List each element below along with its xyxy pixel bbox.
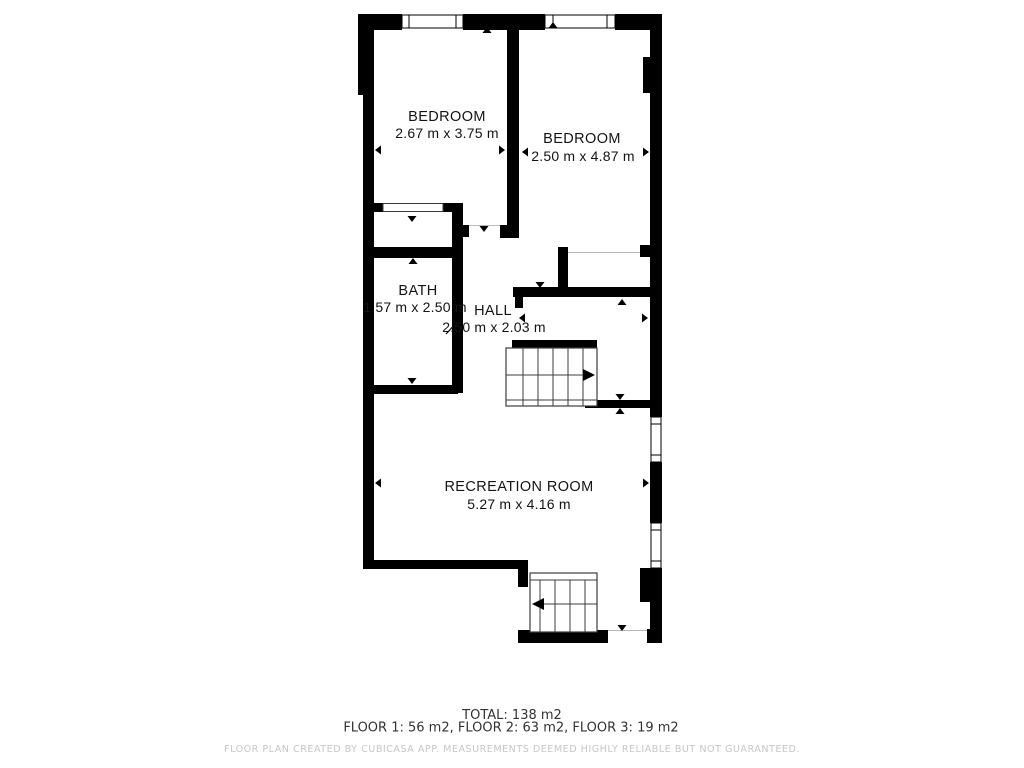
- room-dimensions: 1.57 m x 2.50 m: [363, 299, 466, 315]
- floor-plan-page: BEDROOM 2.67 m x 3.75 m BEDROOM 2.50 m x…: [0, 0, 1024, 768]
- room-name: BEDROOM: [408, 109, 486, 125]
- room-name: BATH: [398, 283, 437, 299]
- room-name: BEDROOM: [543, 131, 621, 147]
- room-dimensions: 2.67 m x 3.75 m: [395, 125, 498, 141]
- window-top-left: [402, 15, 463, 28]
- staircase-upper: [506, 348, 597, 406]
- room-name: RECREATION ROOM: [444, 479, 593, 495]
- disclaimer-text: FLOOR PLAN CREATED BY CUBICASA APP. MEAS…: [224, 744, 800, 755]
- staircase-lower: [530, 573, 597, 632]
- window-right-lower: [651, 523, 661, 568]
- room-dimensions: 2.50 m x 4.87 m: [531, 148, 634, 164]
- room-dimensions: 2.50 m x 2.03 m: [442, 319, 545, 335]
- window-right-upper: [651, 417, 661, 462]
- floor-areas-text: FLOOR 1: 56 m2, FLOOR 2: 63 m2, FLOOR 3:…: [343, 721, 678, 736]
- room-bedroom-2: BEDROOM 2.50 m x 4.87 m: [531, 131, 634, 164]
- room-name: HALL: [474, 303, 512, 319]
- floor-plan: BEDROOM 2.67 m x 3.75 m BEDROOM 2.50 m x…: [0, 0, 1024, 768]
- room-dimensions: 5.27 m x 4.16 m: [467, 496, 570, 512]
- room-bedroom-1: BEDROOM 2.67 m x 3.75 m: [395, 109, 498, 141]
- sliding-door-opening: [383, 204, 443, 212]
